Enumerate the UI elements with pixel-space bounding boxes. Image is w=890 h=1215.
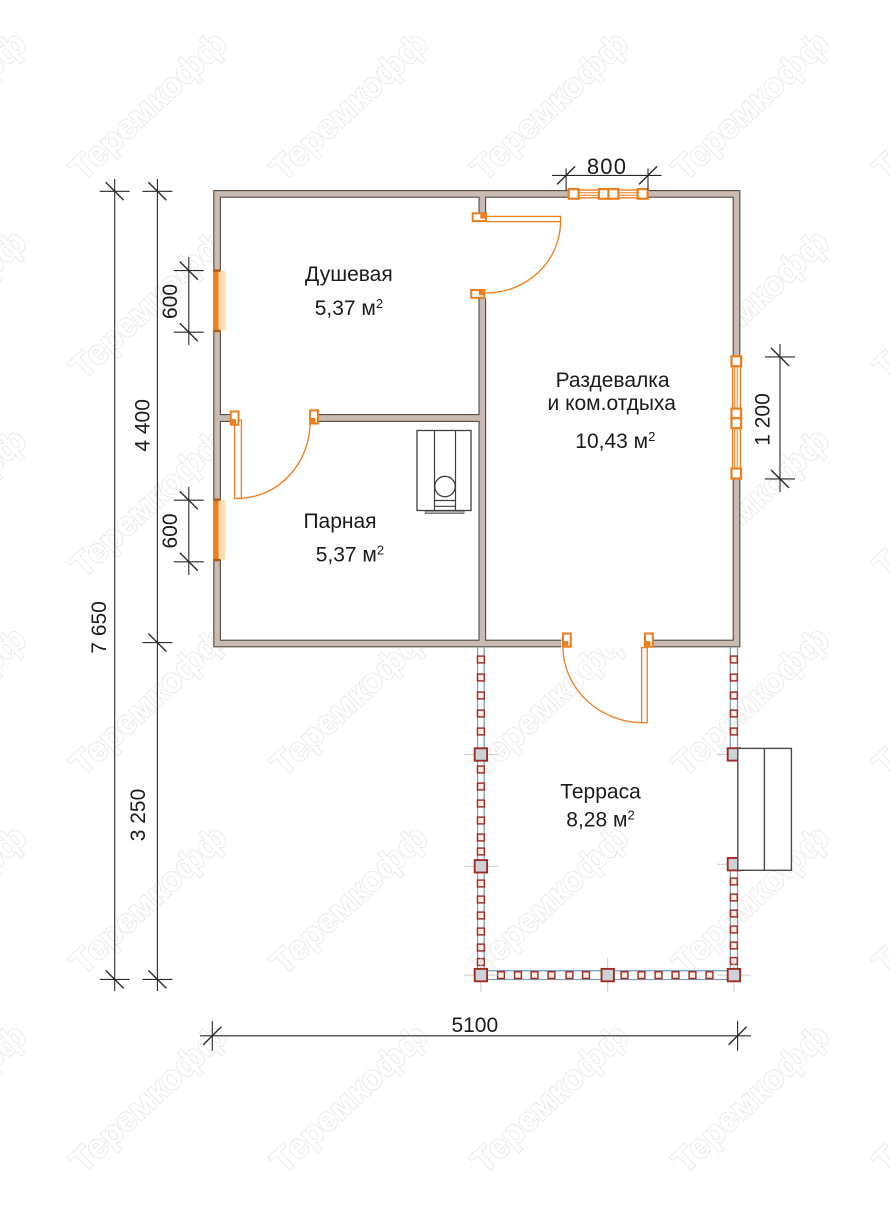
svg-text:600: 600 — [159, 284, 182, 319]
svg-text:600: 600 — [159, 513, 182, 548]
svg-text:Терраса: Терраса — [560, 781, 641, 804]
svg-text:800: 800 — [587, 154, 627, 179]
svg-text:4 400: 4 400 — [132, 399, 155, 452]
svg-text:5,37 м2: 5,37 м2 — [315, 296, 383, 320]
svg-text:Душевая: Душевая — [305, 263, 393, 286]
svg-text:10,43 м2: 10,43 м2 — [575, 429, 655, 453]
svg-text:8,28 м2: 8,28 м2 — [566, 808, 634, 832]
svg-text:7 650: 7 650 — [88, 601, 111, 654]
svg-text:1 200: 1 200 — [751, 393, 774, 446]
svg-text:5100: 5100 — [451, 1014, 498, 1037]
svg-text:3 250: 3 250 — [127, 789, 150, 842]
svg-text:Раздевалка: Раздевалка — [556, 369, 670, 392]
svg-text:и ком.отдыха: и ком.отдыха — [548, 392, 677, 415]
svg-text:Парная: Парная — [303, 510, 376, 533]
svg-text:5,37 м2: 5,37 м2 — [316, 542, 384, 566]
